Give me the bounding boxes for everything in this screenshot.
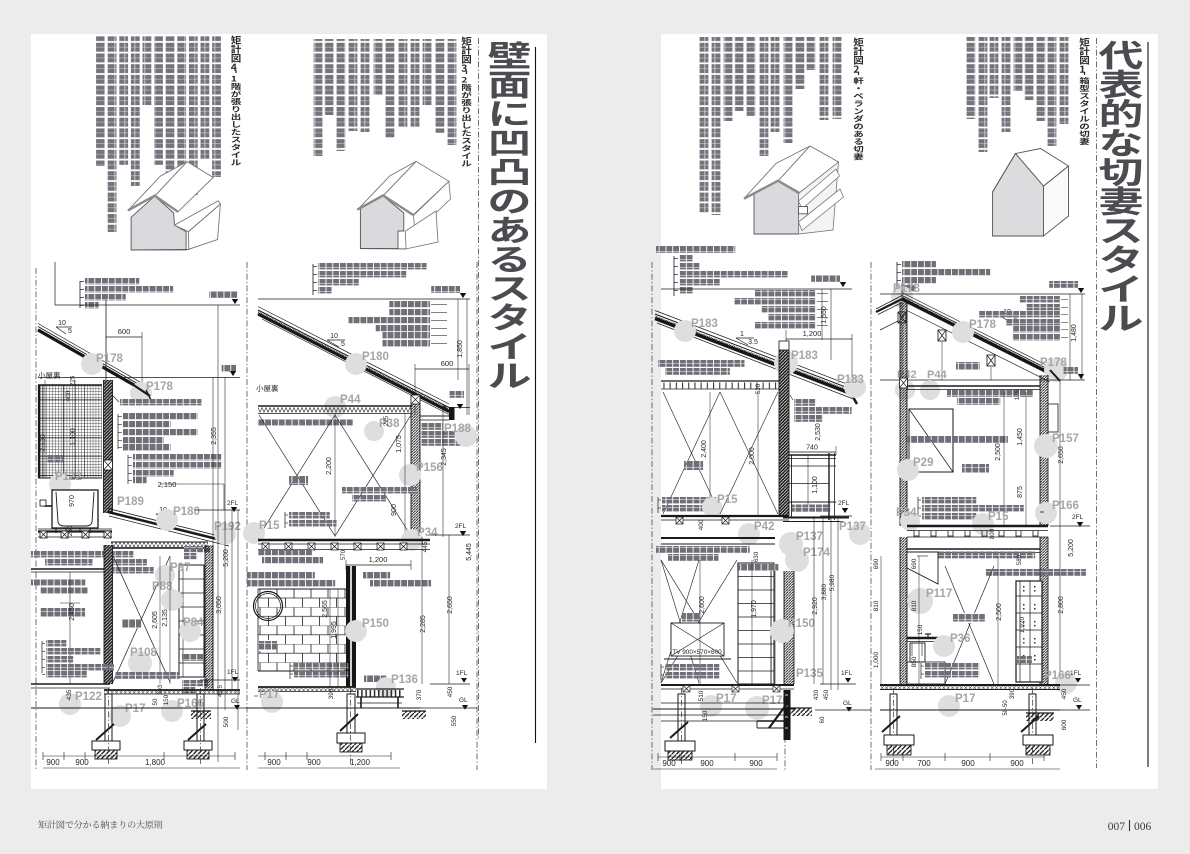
svg-text:970: 970 — [69, 495, 76, 507]
svg-text:P34: P34 — [896, 507, 917, 519]
svg-text:500: 500 — [223, 716, 230, 727]
svg-text:810: 810 — [873, 600, 880, 611]
svg-text:600: 600 — [1061, 719, 1068, 730]
svg-text:1FL: 1FL — [456, 670, 468, 677]
svg-text:1,480: 1,480 — [1071, 324, 1078, 342]
svg-text:2,285: 2,285 — [420, 615, 427, 633]
svg-text:P15: P15 — [717, 494, 738, 506]
svg-text:875: 875 — [1017, 486, 1024, 498]
svg-text:600: 600 — [118, 327, 131, 336]
svg-text:P180: P180 — [362, 351, 389, 363]
svg-text:GL: GL — [1073, 697, 1082, 704]
svg-text:P17: P17 — [955, 693, 975, 705]
svg-text:1,100: 1,100 — [812, 476, 819, 494]
svg-text:P178: P178 — [969, 319, 996, 331]
svg-text:1: 1 — [740, 331, 744, 338]
svg-text:430: 430 — [813, 689, 820, 700]
svg-text:5,200: 5,200 — [1068, 539, 1075, 557]
svg-text:1,450: 1,450 — [1017, 428, 1024, 446]
svg-text:175: 175 — [1014, 389, 1021, 400]
svg-text:P135: P135 — [796, 668, 823, 680]
svg-text:900: 900 — [391, 504, 398, 516]
svg-text:2FL: 2FL — [455, 523, 467, 530]
svg-text:225: 225 — [70, 375, 77, 386]
svg-text:400: 400 — [65, 390, 72, 401]
svg-text:1,850: 1,850 — [457, 340, 464, 358]
svg-text:900: 900 — [267, 758, 281, 767]
svg-text:510: 510 — [698, 690, 705, 701]
svg-text:150: 150 — [163, 694, 170, 705]
svg-text:740: 740 — [806, 445, 818, 452]
svg-text:150: 150 — [702, 710, 709, 721]
svg-text:TV 900×570×600: TV 900×570×600 — [672, 649, 722, 656]
svg-text:2,500: 2,500 — [996, 603, 1003, 621]
svg-text:2,400: 2,400 — [701, 440, 708, 458]
svg-text:5,980: 5,980 — [829, 574, 836, 591]
svg-text:P137: P137 — [839, 521, 866, 533]
svg-text:450: 450 — [1061, 688, 1068, 699]
svg-text:700: 700 — [917, 759, 931, 768]
svg-text:370: 370 — [416, 689, 423, 700]
svg-text:10: 10 — [330, 333, 338, 340]
svg-text:1,920: 1,920 — [1019, 616, 1026, 633]
svg-text:400: 400 — [698, 519, 705, 530]
svg-text:P183: P183 — [791, 350, 818, 362]
svg-text:225: 225 — [383, 415, 390, 426]
svg-text:2,800: 2,800 — [1058, 596, 1065, 614]
svg-text:P17: P17 — [125, 703, 145, 715]
svg-text:2FL: 2FL — [1072, 514, 1084, 521]
svg-text:2,565: 2,565 — [322, 600, 329, 618]
svg-text:303: 303 — [157, 684, 164, 695]
svg-text:1FL: 1FL — [1070, 670, 1082, 677]
svg-text:P84: P84 — [183, 617, 204, 629]
svg-text:2,450: 2,450 — [69, 603, 76, 621]
svg-text:2,920: 2,920 — [812, 597, 819, 615]
svg-text:P180: P180 — [173, 506, 200, 518]
svg-text:900: 900 — [75, 758, 89, 767]
svg-text:2,200: 2,200 — [326, 457, 333, 475]
svg-text:P189: P189 — [117, 496, 144, 508]
svg-text:435: 435 — [66, 689, 73, 700]
svg-text:570: 570 — [340, 549, 347, 560]
svg-text:810: 810 — [911, 600, 918, 611]
svg-text:2,135: 2,135 — [162, 609, 169, 627]
svg-text:P166: P166 — [1044, 670, 1071, 682]
svg-text:P137: P137 — [796, 531, 823, 543]
svg-text:5: 5 — [68, 328, 72, 335]
svg-text:3,050: 3,050 — [216, 596, 223, 614]
svg-text:1,800: 1,800 — [145, 758, 166, 767]
svg-text:1,995: 1,995 — [331, 621, 338, 639]
svg-text:P122: P122 — [75, 691, 102, 703]
svg-text:550: 550 — [451, 715, 458, 726]
svg-text:2,355: 2,355 — [211, 427, 218, 445]
svg-text:P15: P15 — [988, 511, 1009, 523]
svg-text:P150: P150 — [788, 618, 815, 630]
svg-text:1,200: 1,200 — [369, 555, 388, 564]
svg-text:900: 900 — [662, 759, 676, 768]
svg-text:600: 600 — [441, 359, 454, 368]
svg-text:1,100: 1,100 — [70, 428, 77, 446]
svg-text:390: 390 — [328, 688, 335, 699]
svg-text:60: 60 — [819, 716, 826, 723]
svg-text:150: 150 — [917, 624, 924, 635]
svg-text:1,550: 1,550 — [821, 306, 828, 324]
svg-text:P150: P150 — [362, 618, 389, 630]
svg-text:900: 900 — [961, 759, 975, 768]
svg-text:P166: P166 — [1052, 500, 1079, 512]
svg-text:900: 900 — [46, 758, 60, 767]
svg-text:P36: P36 — [950, 633, 970, 645]
svg-text:P136: P136 — [391, 674, 418, 686]
svg-text:450: 450 — [823, 689, 830, 700]
svg-text:2,150: 2,150 — [158, 480, 177, 489]
svg-text:P15: P15 — [259, 520, 280, 532]
svg-text:50: 50 — [152, 698, 159, 705]
svg-text:GL: GL — [231, 698, 240, 705]
svg-text:2,000: 2,000 — [749, 447, 756, 465]
svg-text:P188: P188 — [444, 423, 471, 435]
svg-text:690: 690 — [911, 558, 918, 569]
svg-text:P29: P29 — [913, 457, 933, 469]
svg-text:1FL: 1FL — [841, 670, 853, 677]
svg-text:007: 007 — [1108, 821, 1126, 833]
svg-text:2,600: 2,600 — [699, 596, 706, 614]
svg-text:450: 450 — [447, 686, 454, 697]
svg-text:5: 5 — [341, 341, 345, 348]
svg-text:900: 900 — [307, 758, 321, 767]
svg-text:P117: P117 — [926, 588, 952, 600]
svg-text:2,650: 2,650 — [447, 596, 454, 614]
svg-text:P122: P122 — [55, 471, 82, 483]
svg-text:2,500: 2,500 — [995, 443, 1002, 461]
svg-text:P174: P174 — [803, 547, 830, 559]
svg-text:006: 006 — [1134, 821, 1152, 833]
svg-text:10: 10 — [58, 320, 66, 327]
svg-text:690: 690 — [873, 558, 880, 569]
svg-text:1,200: 1,200 — [803, 329, 822, 338]
svg-text:P156: P156 — [416, 462, 443, 474]
svg-text:P34: P34 — [417, 527, 438, 539]
svg-text:5,445: 5,445 — [466, 543, 473, 561]
svg-text:1,075: 1,075 — [396, 435, 403, 453]
svg-text:P97: P97 — [170, 562, 190, 574]
svg-text:1,000: 1,000 — [873, 651, 880, 668]
svg-text:2,130: 2,130 — [40, 434, 47, 452]
svg-text:GL: GL — [843, 700, 852, 707]
svg-text:445: 445 — [422, 541, 429, 552]
svg-text:P183: P183 — [837, 374, 864, 386]
svg-text:P178: P178 — [96, 353, 123, 365]
svg-text:850: 850 — [911, 656, 918, 667]
svg-text:3.5: 3.5 — [748, 339, 758, 346]
svg-text:P178: P178 — [893, 283, 920, 295]
svg-text:900: 900 — [885, 759, 899, 768]
svg-text:900: 900 — [749, 759, 763, 768]
svg-text:2FL: 2FL — [227, 500, 239, 507]
svg-text:P178: P178 — [146, 381, 173, 393]
svg-text:530: 530 — [755, 383, 762, 394]
svg-text:P178: P178 — [1040, 357, 1067, 369]
svg-text:5,200: 5,200 — [223, 549, 230, 567]
svg-text:2FL: 2FL — [838, 500, 850, 507]
svg-text:P17: P17 — [259, 689, 279, 701]
svg-text:1,970: 1,970 — [751, 600, 758, 618]
svg-text:900: 900 — [1010, 759, 1024, 768]
svg-text:GL: GL — [459, 697, 468, 704]
svg-text:2,605: 2,605 — [152, 611, 159, 629]
svg-text:580: 580 — [1016, 554, 1023, 565]
svg-text:2,345: 2,345 — [441, 448, 448, 466]
svg-text:2,650: 2,650 — [1058, 446, 1065, 464]
svg-text:P42: P42 — [754, 521, 774, 533]
svg-text:2,530: 2,530 — [815, 423, 822, 441]
svg-text:1,200: 1,200 — [350, 758, 371, 767]
svg-text:260: 260 — [67, 525, 74, 536]
svg-text:3,880: 3,880 — [821, 583, 828, 600]
svg-text:630: 630 — [753, 551, 760, 562]
svg-text:900: 900 — [700, 759, 714, 768]
svg-text:P183: P183 — [691, 318, 718, 330]
svg-text:390: 390 — [1009, 688, 1016, 699]
svg-text:P44: P44 — [927, 369, 947, 381]
svg-text:50-50: 50-50 — [1003, 700, 1009, 716]
svg-text:P157: P157 — [1052, 433, 1079, 445]
svg-text:1FL: 1FL — [227, 669, 239, 676]
svg-text:800: 800 — [989, 528, 996, 539]
svg-text:P108: P108 — [130, 647, 157, 659]
svg-text:P44: P44 — [340, 394, 361, 406]
